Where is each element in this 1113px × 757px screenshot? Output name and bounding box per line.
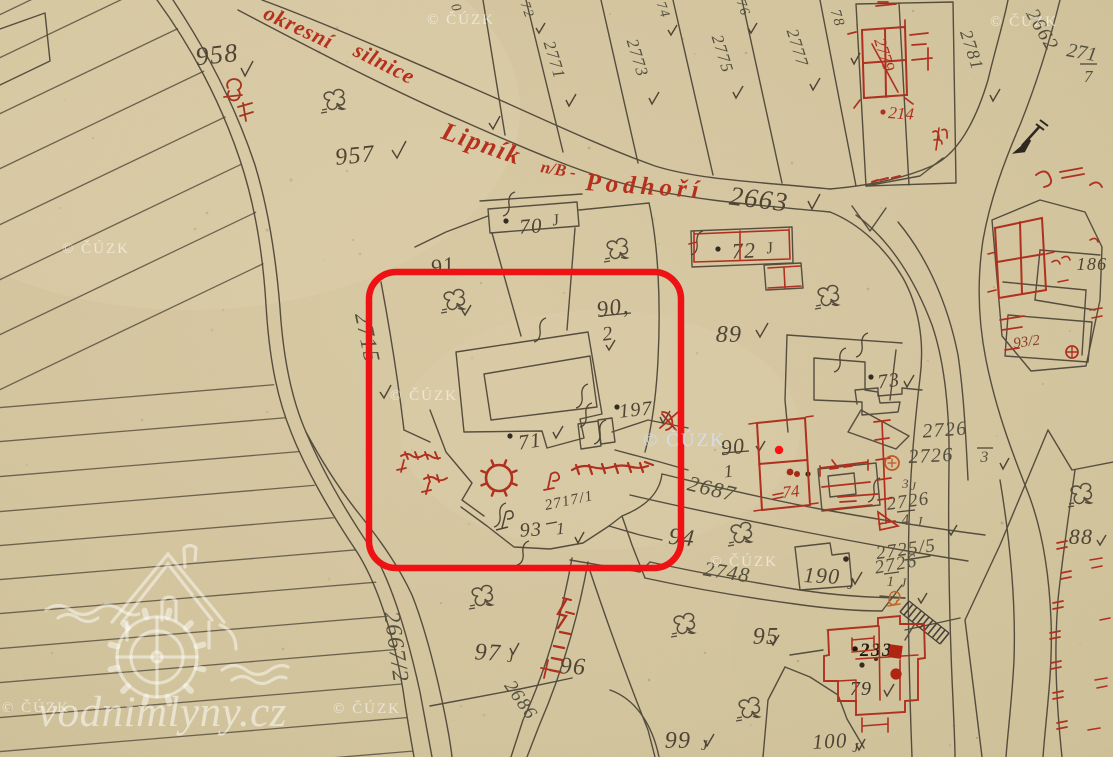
svg-text:3: 3 (979, 449, 989, 466)
svg-text:93: 93 (519, 518, 543, 542)
svg-text:J: J (916, 515, 924, 530)
svg-text:91: 91 (429, 251, 458, 280)
svg-text:3: 3 (901, 476, 910, 491)
svg-text:958: 958 (194, 38, 240, 71)
svg-text:89: 89 (716, 322, 743, 348)
svg-text:© ČÚZK: © ČÚZK (427, 11, 495, 28)
svg-text:© ČÚZK: © ČÚZK (643, 429, 726, 451)
svg-text:97: 97 (474, 639, 502, 666)
svg-text:95: 95 (753, 624, 780, 650)
svg-text:J: J (911, 479, 918, 493)
svg-text:J: J (900, 575, 907, 590)
svg-text:190: 190 (803, 562, 841, 589)
svg-text:© ČÚZK: © ČÚZK (62, 240, 130, 257)
svg-text:96: 96 (559, 653, 587, 680)
svg-text:2726: 2726 (908, 444, 954, 468)
svg-text:1: 1 (887, 574, 896, 590)
svg-text:79: 79 (850, 678, 873, 700)
svg-text:957: 957 (334, 141, 376, 171)
svg-text:© ČÚZK: © ČÚZK (390, 387, 458, 404)
svg-text:71: 71 (517, 427, 544, 454)
svg-text:4: 4 (901, 512, 912, 530)
svg-text:214: 214 (888, 103, 915, 124)
svg-text:74: 74 (781, 481, 800, 502)
svg-text:vodnimlyny.cz: vodnimlyny.cz (38, 689, 287, 736)
svg-text:186: 186 (1077, 254, 1108, 274)
svg-text:100: 100 (812, 728, 849, 754)
svg-text:© ČÚZK: © ČÚZK (333, 700, 401, 717)
svg-text:J: J (701, 738, 709, 754)
svg-text:1: 1 (555, 519, 566, 539)
svg-text:88: 88 (1069, 524, 1094, 549)
svg-text:90,: 90, (595, 293, 631, 322)
svg-text:© ČÚZK: © ČÚZK (710, 553, 778, 570)
svg-text:73: 73 (876, 369, 901, 394)
svg-text:70: 70 (518, 213, 543, 239)
svg-text:99: 99 (665, 728, 692, 754)
svg-text:2726: 2726 (922, 417, 969, 442)
svg-text:J: J (847, 577, 855, 593)
svg-text:197: 197 (618, 397, 654, 422)
svg-text:© ČÚZK: © ČÚZK (990, 13, 1058, 30)
